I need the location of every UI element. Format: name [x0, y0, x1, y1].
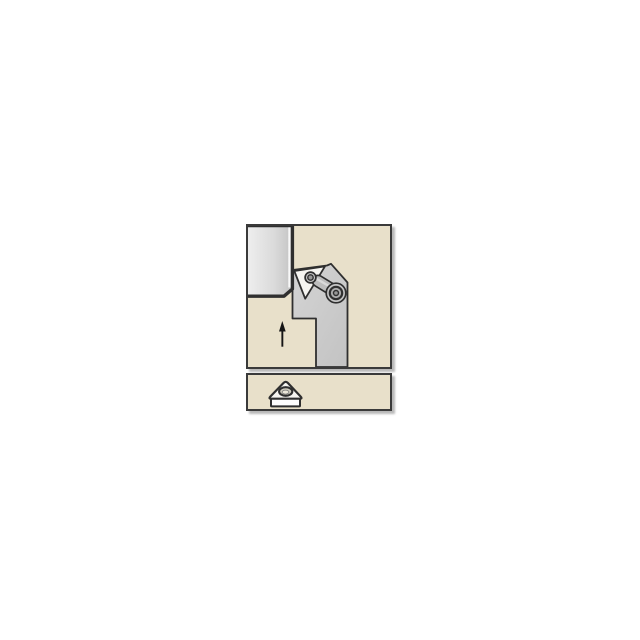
insert-hole [279, 387, 292, 396]
tool-application-illustration [248, 226, 390, 367]
triangular-insert-icon [248, 375, 390, 409]
feed-direction-arrow-icon [279, 321, 286, 347]
catalog-illustration-page [0, 0, 640, 640]
insert-shape-panel [246, 373, 392, 411]
application-diagram-panel [246, 224, 392, 369]
clamp-screw-icon [326, 283, 346, 303]
insert-screw-icon [305, 272, 316, 283]
workpiece-block [248, 226, 294, 297]
